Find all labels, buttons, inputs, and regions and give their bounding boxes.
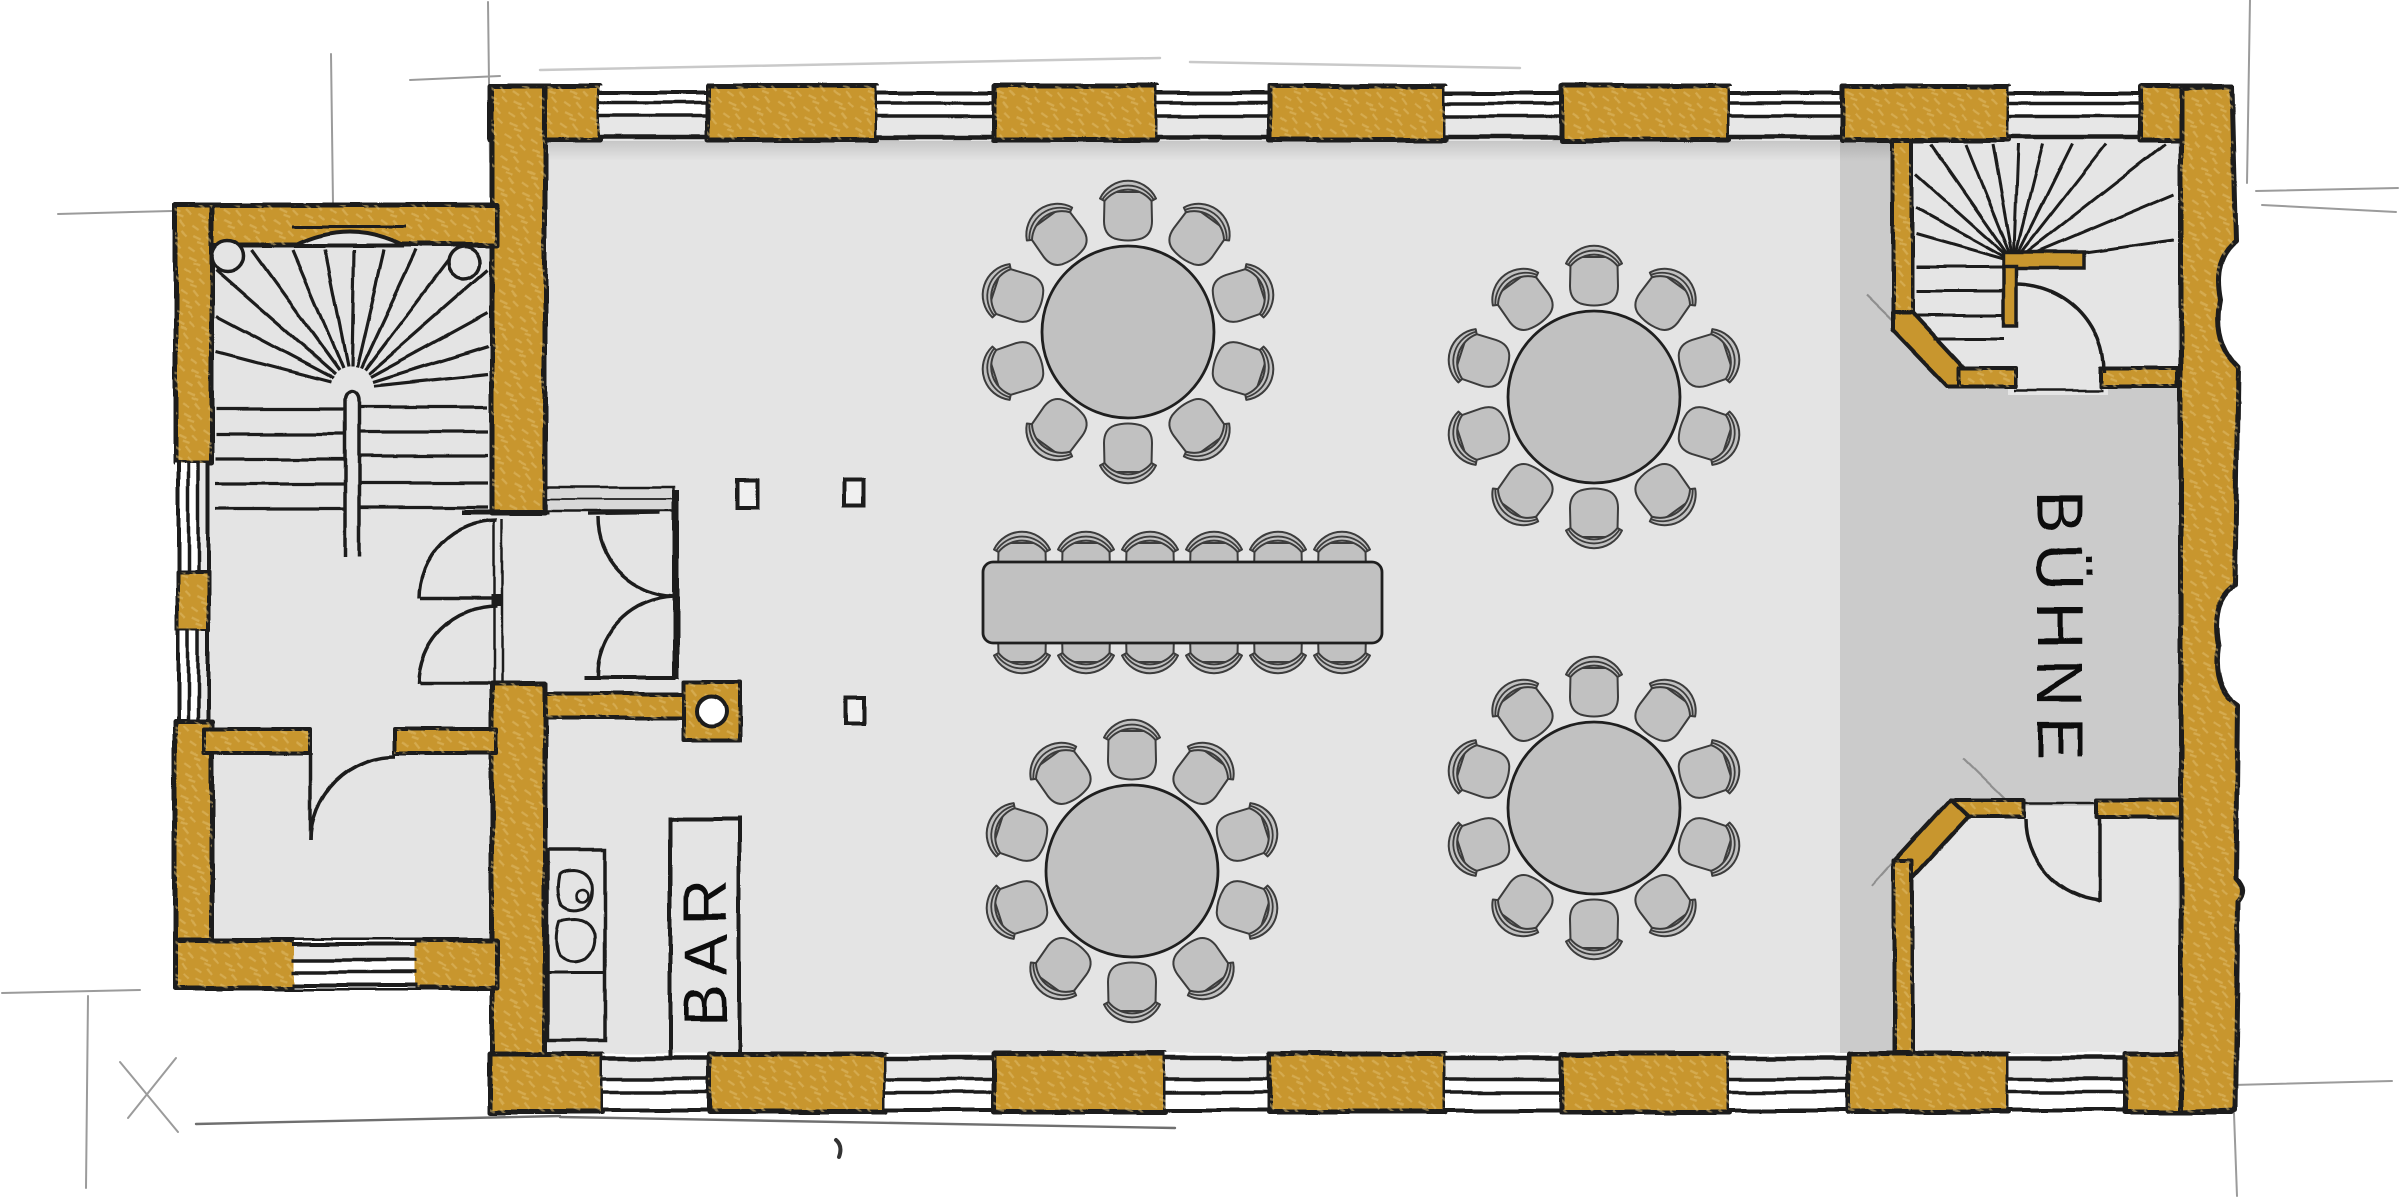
svg-text:BAR: BAR [672, 871, 741, 1025]
svg-text:BÜHNE: BÜHNE [2023, 489, 2097, 770]
